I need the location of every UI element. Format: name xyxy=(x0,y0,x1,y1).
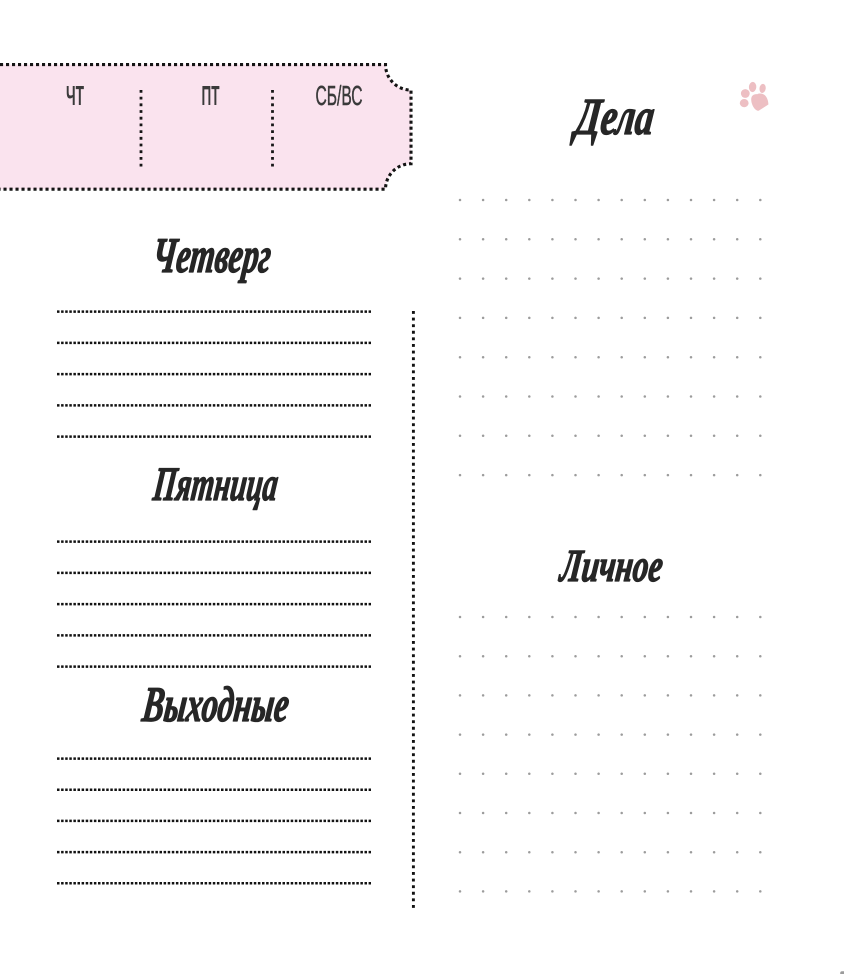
svg-text:ПТ: ПТ xyxy=(202,80,220,111)
svg-text:Дела: Дела xyxy=(570,88,658,146)
svg-text:Пятница: Пятница xyxy=(150,458,281,511)
svg-text:Личное: Личное xyxy=(556,540,666,591)
svg-text:ЧТ: ЧТ xyxy=(66,80,84,111)
svg-text:Выходные: Выходные xyxy=(139,676,292,732)
svg-text:Четверг: Четверг xyxy=(150,227,275,283)
svg-text:СБ/ВС: СБ/ВС xyxy=(316,80,363,111)
